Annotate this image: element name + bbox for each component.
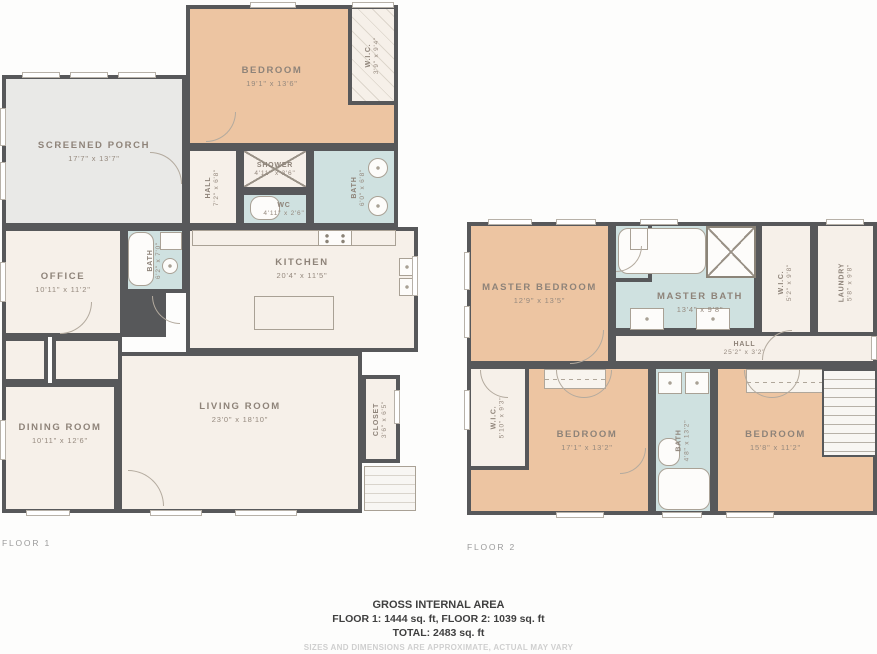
room-label: WC 4'11" x 2'6": [245, 202, 304, 217]
floor-areas-line: FLOOR 1: 1444 sq. ft, FLOOR 2: 1039 sq. …: [0, 612, 877, 626]
window: [0, 262, 6, 302]
room-name: W.I.C.: [490, 406, 497, 430]
room-label: BATH 6'2" x 7'0": [148, 241, 163, 278]
room-dims: 10'11" x 12'6": [32, 436, 88, 445]
closet-a-floor1: [2, 337, 48, 383]
window: [22, 72, 60, 78]
bathtub: [658, 468, 710, 510]
room-label: BATH 4'8" x 13'2": [675, 419, 690, 461]
room-dims: 25'2" x 3'2": [724, 349, 766, 356]
room-laundry: LAUNDRY 5'8" x 9'8": [814, 222, 877, 342]
room-name: BEDROOM: [557, 429, 618, 440]
room-dims: 6'0" x 6'8": [360, 168, 367, 205]
room-dims: 12'9" x 13'5": [514, 296, 566, 305]
room-dims: 4'8" x 13'2": [683, 419, 690, 461]
room-name: KITCHEN: [275, 257, 328, 268]
sink: [162, 258, 178, 274]
window: [464, 390, 470, 430]
window: [352, 2, 394, 8]
closet-b-floor1: [52, 337, 122, 383]
room-name: BATH: [148, 249, 155, 271]
room-dims: 17'1" x 13'2": [561, 443, 613, 452]
window: [662, 512, 702, 518]
room-label: DINING ROOM 10'11" x 12'6": [18, 422, 101, 475]
sink: [658, 372, 682, 394]
disclaimer-line: SIZES AND DIMENSIONS ARE APPROXIMATE, AC…: [0, 642, 877, 654]
room-dims: 6'2" x 7'0": [156, 241, 163, 278]
room-name: SCREENED PORCH: [38, 140, 150, 151]
window: [871, 336, 877, 360]
window: [556, 219, 596, 225]
floor2-label: FLOOR 2: [467, 542, 516, 552]
room-name: OFFICE: [41, 271, 85, 282]
room-hall-floor1: HALL 7'2" x 6'8": [186, 147, 240, 227]
room-dims: 5'8" x 9'8": [846, 263, 853, 300]
room-dims: 10'11" x 11'2": [35, 285, 90, 294]
room-label: MASTER BEDROOM 12'9" x 13'5": [482, 282, 597, 305]
window: [464, 306, 470, 338]
window: [118, 72, 156, 78]
room-label: MASTER BATH 13'4" x 9'8": [627, 241, 743, 314]
room-label: LAUNDRY 5'8" x 9'8": [838, 262, 853, 302]
room-dims: 15'8" x 11'2": [750, 443, 801, 452]
room-dims: 23'0" x 18'10": [212, 415, 269, 424]
room-label: SHOWER 4'11" x 3'6": [254, 162, 295, 177]
window: [826, 219, 864, 225]
entry-steps: [364, 466, 416, 511]
sink: [368, 158, 388, 178]
window: [26, 510, 70, 516]
window: [394, 390, 400, 424]
stove: [318, 230, 352, 246]
room-name: BATH: [352, 176, 359, 198]
room-dims: 4'11" x 3'6": [254, 170, 295, 177]
room-dining: DINING ROOM 10'11" x 12'6": [2, 383, 118, 513]
room-name: SHOWER: [257, 162, 293, 169]
window: [150, 510, 202, 516]
room-label: HALL 25'2" x 3'2": [724, 341, 766, 356]
room-name: LAUNDRY: [838, 262, 845, 302]
room-label: KITCHEN 20'4" x 11'5": [275, 257, 328, 322]
window: [488, 219, 532, 225]
room-label: LIVING ROOM 23'0" x 18'10": [199, 401, 280, 464]
window: [640, 219, 678, 225]
room-label: CLOSET 3'6" x 6'5": [374, 400, 389, 437]
window: [0, 420, 6, 460]
room-hall-floor2: HALL 25'2" x 3'2": [612, 332, 877, 365]
room-dims: 13'4" x 9'8": [677, 305, 724, 314]
room-label: W.I.C. 3'9" x 9'4": [366, 36, 381, 73]
kitchen-counter: [192, 230, 396, 246]
room-label: OFFICE 10'11" x 11'2": [35, 271, 90, 294]
room-dims: 19'1" x 13'6": [246, 79, 298, 88]
sink: [685, 372, 709, 394]
room-dims: 17'7" x 13'7": [68, 154, 120, 163]
window: [726, 512, 774, 518]
room-name: CLOSET: [374, 402, 381, 435]
room-dims: 4'11" x 2'6": [263, 210, 304, 217]
room-dims: 20'4" x 11'5": [277, 271, 328, 280]
room-name: WC: [277, 202, 290, 209]
room-name: LIVING ROOM: [199, 401, 280, 412]
stairs: [822, 369, 877, 457]
window: [464, 252, 470, 290]
floor1-label: FLOOR 1: [2, 538, 51, 548]
room-name: BEDROOM: [745, 429, 806, 440]
gross-area-title: GROSS INTERNAL AREA: [0, 598, 877, 612]
room-label: BEDROOM 17'1" x 13'2": [502, 429, 618, 452]
floorplan-page: { "colors": { "wall": "#57585a", "bedroo…: [0, 0, 877, 647]
room-name: W.I.C.: [779, 270, 786, 294]
room-screened-porch: SCREENED PORCH 17'7" x 13'7": [2, 75, 186, 227]
window: [412, 256, 418, 296]
room-dims: 3'9" x 9'4": [374, 36, 381, 73]
toilet: [160, 232, 182, 250]
room-name: HALL: [206, 176, 213, 198]
room-name: MASTER BATH: [657, 291, 743, 302]
gross-area-footer: GROSS INTERNAL AREA FLOOR 1: 1444 sq. ft…: [0, 598, 877, 654]
room-name: DINING ROOM: [18, 422, 101, 433]
room-label: HALL 7'2" x 6'8": [206, 168, 221, 205]
total-area-line: TOTAL: 2483 sq. ft: [0, 626, 877, 640]
room-dims: 5'2" x 9'8": [787, 263, 794, 300]
room-wic-floor1: W.I.C. 3'9" x 9'4": [348, 5, 398, 105]
room-bath-main-floor1: BATH 6'0" x 6'8": [310, 147, 398, 227]
room-shower-floor1: SHOWER 4'11" x 3'6": [240, 147, 310, 191]
room-wic-top-floor2: W.I.C. 5'2" x 9'8": [758, 222, 814, 342]
room-label: BEDROOM 19'1" x 13'6": [242, 65, 343, 88]
window: [556, 512, 604, 518]
room-label: SCREENED PORCH 17'7" x 13'7": [38, 140, 150, 163]
room-dims: 3'6" x 6'5": [382, 400, 389, 437]
sink: [368, 196, 388, 216]
window: [0, 162, 6, 200]
room-name: MASTER BEDROOM: [482, 282, 597, 293]
room-name: W.I.C.: [366, 43, 373, 67]
room-label: BATH 6'0" x 6'8": [342, 168, 367, 205]
room-dims: 7'2" x 6'8": [214, 168, 221, 205]
room-name: BEDROOM: [242, 65, 303, 76]
room-name: BATH: [675, 429, 682, 451]
room-name: HALL: [734, 341, 756, 348]
window: [250, 2, 296, 8]
window: [235, 510, 297, 516]
window: [70, 72, 108, 78]
window: [0, 108, 6, 146]
room-label: W.I.C. 5'2" x 9'8": [779, 263, 794, 300]
